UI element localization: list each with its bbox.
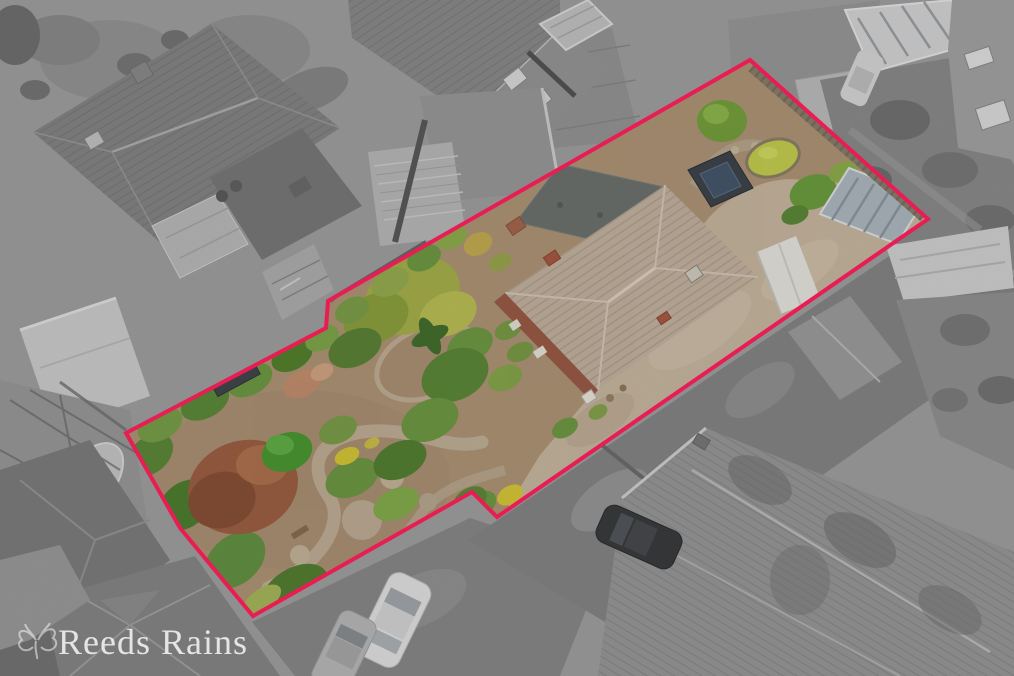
aerial-photo: Reeds Rains	[0, 0, 1014, 676]
aerial-photo-svg: Reeds Rains	[0, 0, 1014, 676]
watermark-text: Reeds Rains	[58, 622, 248, 662]
